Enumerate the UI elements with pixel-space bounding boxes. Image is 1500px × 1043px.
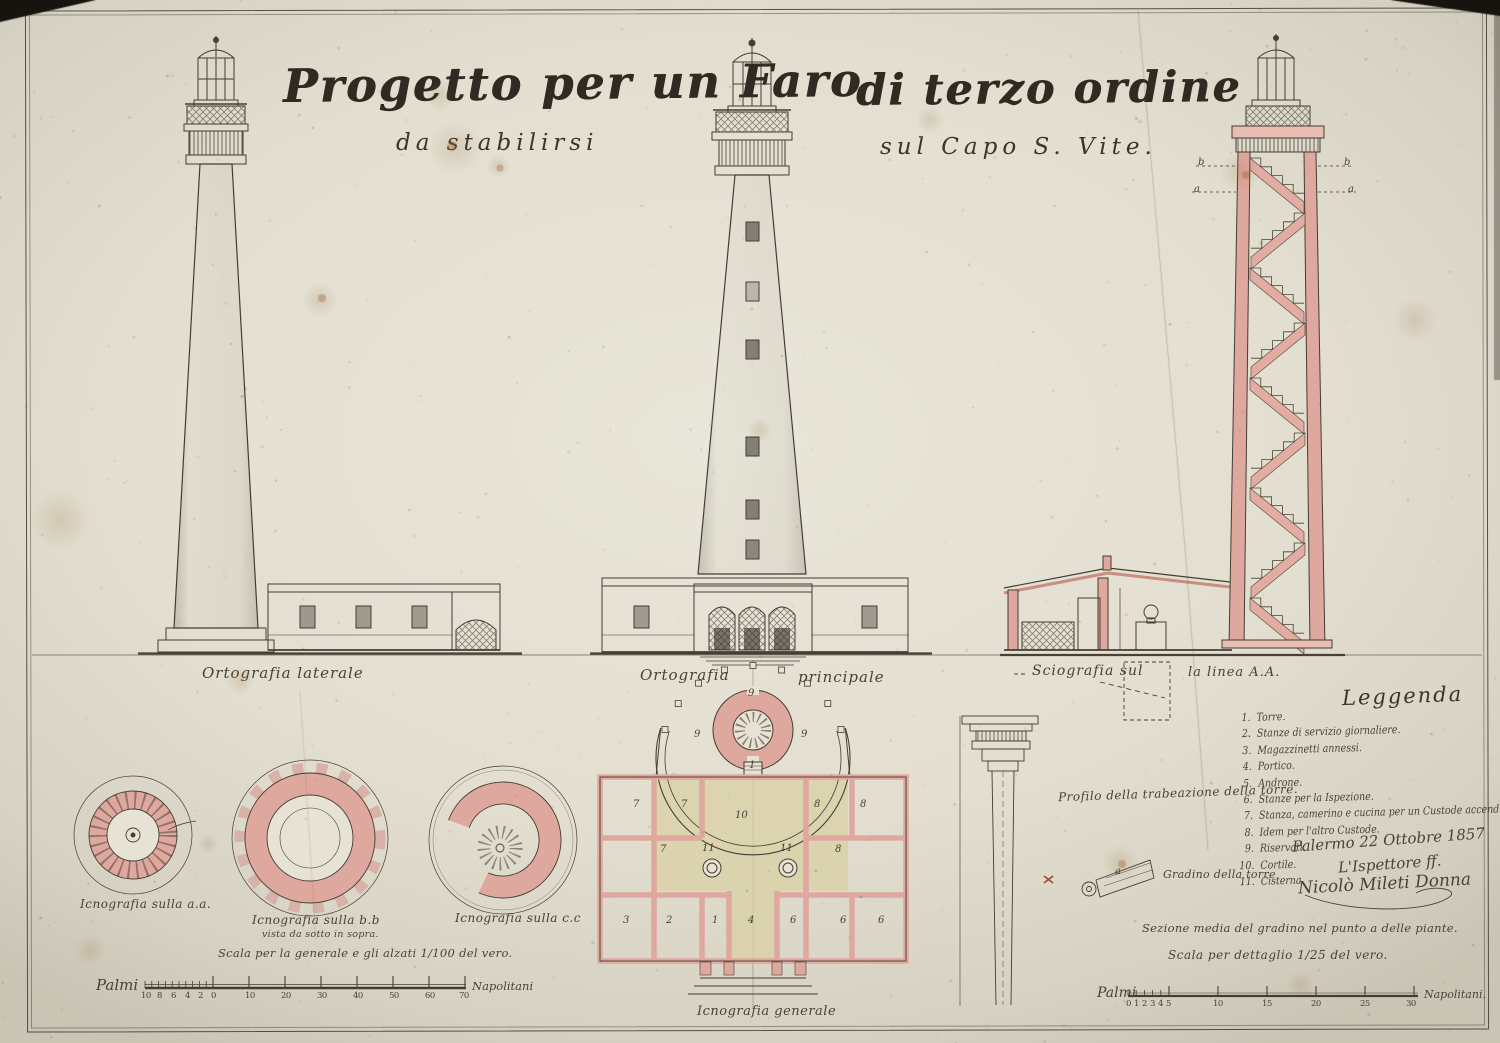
annotation-let: a: [1194, 184, 1200, 195]
plan-general: [600, 660, 908, 1008]
annotation-num: 1: [712, 915, 718, 926]
drawing-sheet: Progetto per un Faro di terzo ordine da …: [0, 0, 1500, 1043]
plan-detail-aa: [74, 776, 196, 894]
label-scale-detail: Scala per dettaglio 1/25 del vero.: [1168, 948, 1388, 962]
annotation-num: 10: [735, 810, 748, 821]
annotation-tick: 10: [1213, 999, 1223, 1009]
detail-gradino: [1044, 860, 1154, 897]
annotation-tick: 5: [1166, 999, 1171, 1009]
scalebar-detail: [1128, 986, 1418, 996]
annotation-tick: 10: [245, 991, 255, 1001]
annotation-num: 2: [666, 915, 672, 926]
annotation-num: 4: [748, 915, 754, 926]
label-elevation-main-1: Ortografia: [640, 666, 730, 684]
annotation-num: 6: [790, 915, 796, 926]
annotation-tick: 60: [425, 991, 435, 1001]
label-plan-bb: Icnografia sulla b.b: [252, 913, 380, 927]
label-napolitani-right: Napolitani.: [1424, 988, 1486, 1001]
annotation-tick: 0: [211, 991, 216, 1001]
annotation-num: 7: [660, 844, 666, 855]
title-line2-right: sul Capo S. Vite.: [880, 134, 1157, 160]
annotation-num: 11: [780, 843, 793, 854]
annotation-num: 6: [878, 915, 884, 926]
annotation-let: b: [1344, 157, 1350, 168]
annotation-tick: 50: [389, 991, 399, 1001]
annotation-tick: 8: [157, 991, 162, 1001]
title-line1-left: Progetto per un Faro: [283, 53, 863, 113]
title-line1-right: di terzo ordine: [856, 62, 1242, 116]
label-scale-main: Scala per la generale e gli alzati 1/100…: [218, 946, 512, 960]
annotation-let: b: [1198, 157, 1204, 168]
annotation-tick: 70: [459, 991, 469, 1001]
label-palmi-left: Palmi: [96, 976, 138, 994]
annotation-num: 9: [694, 729, 700, 740]
label-gradino-section: Sezione media del gradino nel punto a de…: [1142, 921, 1458, 935]
annotation-tick: 30: [317, 991, 327, 1001]
annotation-tick: 2: [1142, 999, 1147, 1009]
elevation-lateral-building: [268, 584, 500, 650]
annotation-num: 3: [623, 915, 629, 926]
annotation-tick: 20: [281, 991, 291, 1001]
annotation-tick: 15: [1262, 999, 1272, 1009]
label-plan-general: Icnografia generale: [697, 1004, 836, 1019]
label-plan-bb-sub: vista da sotto in sopra.: [262, 929, 379, 940]
plan-detail-bb: [232, 760, 388, 916]
annotation-num: 6: [840, 915, 846, 926]
annotation-num: 8: [814, 799, 820, 810]
annotation-num: 7: [681, 799, 687, 810]
label-plan-aa: Icnografia sulla a.a.: [80, 897, 211, 911]
annotation-num: a: [1115, 866, 1121, 877]
annotation-tick: 40: [353, 991, 363, 1001]
annotation-let: a: [1348, 184, 1354, 195]
label-plan-cc: Icnografia sulla c.c: [455, 911, 581, 925]
annotation-tick: 20: [1311, 999, 1321, 1009]
annotation-num: 8: [860, 799, 866, 810]
annotation-tick: 30: [1406, 999, 1416, 1009]
annotation-tick: 1: [1134, 999, 1139, 1009]
annotation-num: 11: [702, 843, 715, 854]
annotation-tick: 6: [171, 991, 176, 1001]
label-section-1: Sciografia sul: [1032, 663, 1143, 679]
annotation-num: 7: [633, 799, 639, 810]
annotation-tick: 0: [1126, 999, 1131, 1009]
elevation-principal-tower: [698, 38, 806, 574]
annotation-num: 9: [748, 688, 754, 699]
section-building: [1004, 556, 1232, 720]
ground-line: [32, 654, 1482, 656]
annotation-tick: 4: [1158, 999, 1163, 1009]
annotation-tick: 2: [198, 991, 203, 1001]
annotation-tick: 3: [1150, 999, 1155, 1009]
label-elevation-lateral: Ortografia laterale: [202, 664, 364, 682]
section-tower: [1192, 34, 1356, 654]
label-elevation-main-2: principale: [798, 668, 885, 686]
plan-detail-cc: [429, 766, 578, 915]
label-section-2: la linea A.A.: [1188, 665, 1280, 680]
elevation-lateral-tower: [158, 36, 274, 652]
annotation-num: 1: [749, 760, 755, 771]
detail-trabeazione: [960, 716, 1038, 1006]
annotation-tick: 4: [185, 991, 190, 1001]
title-line2-left: da stabilirsi: [396, 130, 598, 156]
elevation-principal-building: [602, 578, 908, 665]
annotation-num: 8: [835, 844, 841, 855]
annotation-num: 9: [801, 729, 807, 740]
annotation-tick: 25: [1360, 999, 1370, 1009]
scalebar-main: [145, 976, 466, 988]
annotation-tick: 10: [141, 991, 151, 1001]
label-napolitani-left: Napolitani: [472, 979, 533, 993]
